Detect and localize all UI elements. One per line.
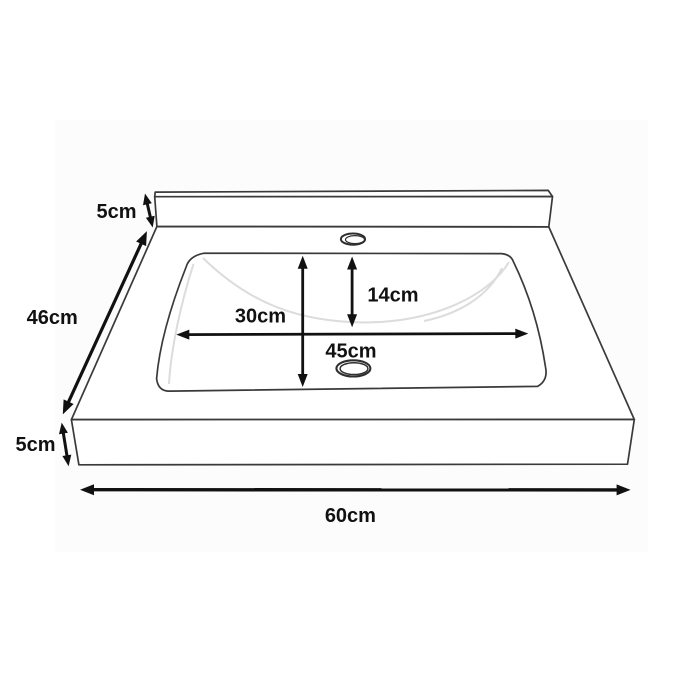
svg-text:46cm: 46cm [27, 307, 78, 329]
svg-text:5cm: 5cm [15, 434, 55, 456]
svg-text:30cm: 30cm [235, 306, 286, 328]
svg-text:14cm: 14cm [367, 285, 418, 307]
svg-text:5cm: 5cm [96, 201, 136, 223]
svg-text:60cm: 60cm [325, 505, 376, 527]
svg-text:45cm: 45cm [325, 341, 376, 363]
